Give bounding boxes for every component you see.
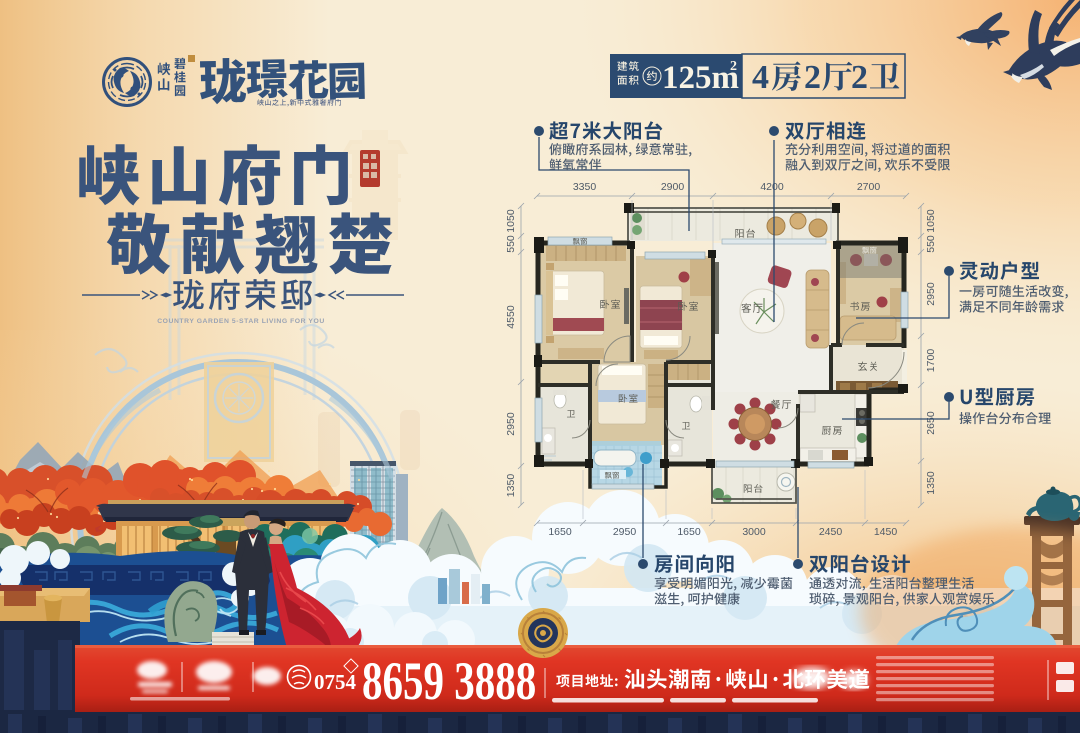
svg-text:1350: 1350: [505, 474, 517, 498]
svg-text:4200: 4200: [760, 181, 784, 193]
svg-text:COUNTRY GARDEN 5-STAR LIVING F: COUNTRY GARDEN 5-STAR LIVING FOR YOU: [157, 318, 325, 325]
svg-text:3350: 3350: [573, 181, 597, 193]
svg-text:4: 4: [752, 59, 769, 96]
svg-text:2: 2: [730, 59, 737, 74]
svg-text:2450: 2450: [819, 526, 843, 538]
svg-text:1650: 1650: [548, 526, 572, 538]
svg-text:1050: 1050: [925, 209, 937, 233]
svg-text:1650: 1650: [677, 526, 701, 538]
svg-text:2650: 2650: [925, 411, 937, 435]
svg-text:125m: 125m: [662, 60, 739, 96]
svg-text:1050: 1050: [505, 209, 517, 233]
svg-text:550: 550: [925, 235, 937, 253]
svg-text:3000: 3000: [742, 526, 766, 538]
svg-text:2950: 2950: [505, 412, 517, 436]
svg-text:2: 2: [851, 59, 868, 96]
svg-text:2900: 2900: [661, 181, 685, 193]
svg-text:2700: 2700: [857, 181, 881, 193]
svg-text:8659 3888: 8659 3888: [362, 652, 536, 712]
svg-text:2: 2: [804, 59, 821, 96]
svg-text:0754: 0754: [314, 670, 357, 694]
svg-text:2950: 2950: [925, 282, 937, 306]
svg-text:1700: 1700: [925, 349, 937, 373]
svg-text:1450: 1450: [874, 526, 898, 538]
svg-text:2950: 2950: [613, 526, 637, 538]
svg-text:1350: 1350: [925, 471, 937, 495]
svg-text:4550: 4550: [505, 305, 517, 329]
svg-text:550: 550: [505, 235, 517, 253]
